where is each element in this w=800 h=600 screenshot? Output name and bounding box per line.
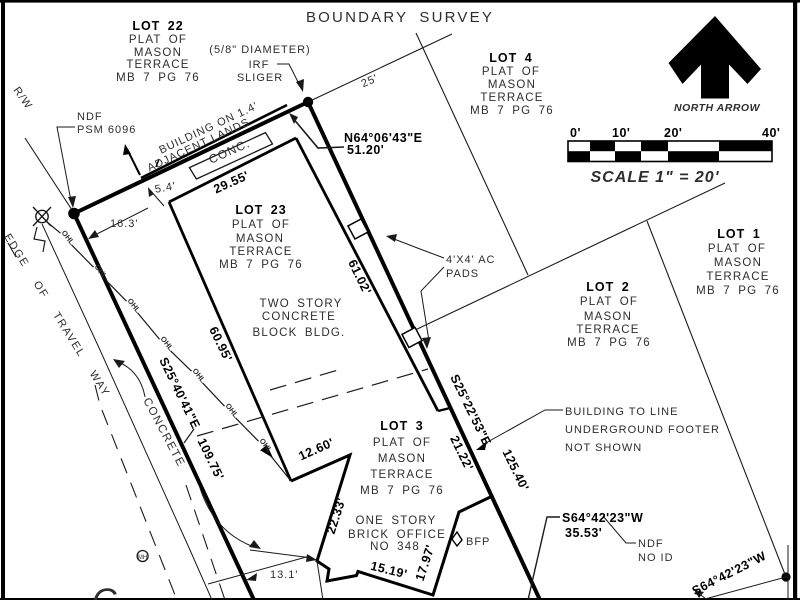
svg-text:BOUNDARY SURVEY: BOUNDARY SURVEY <box>306 9 494 26</box>
svg-text:PLAT OF: PLAT OF <box>232 219 290 231</box>
svg-text:40': 40' <box>762 126 780 140</box>
svg-text:PSM 6096: PSM 6096 <box>77 124 136 136</box>
svg-text:PLAT OF: PLAT OF <box>708 243 766 255</box>
svg-text:MB 7 PG 76: MB 7 PG 76 <box>116 72 200 84</box>
svg-text:PLAT OF: PLAT OF <box>482 66 540 78</box>
svg-text:13.1': 13.1' <box>270 569 299 581</box>
svg-text:IRF: IRF <box>249 59 270 71</box>
svg-text:NDF: NDF <box>77 111 103 123</box>
svg-text:(5/8" DIAMETER): (5/8" DIAMETER) <box>209 44 310 56</box>
svg-text:TERRACE: TERRACE <box>229 246 292 258</box>
svg-text:51.20': 51.20' <box>347 143 384 157</box>
svg-text:MASON: MASON <box>236 233 284 245</box>
svg-text:TERRACE: TERRACE <box>576 324 639 336</box>
svg-text:ONE STORY: ONE STORY <box>355 515 436 527</box>
svg-text:BFP: BFP <box>466 536 490 548</box>
svg-text:4'X4' AC: 4'X4' AC <box>446 254 496 266</box>
svg-text:TERRACE: TERRACE <box>706 271 769 283</box>
svg-text:MB 7 PG 76: MB 7 PG 76 <box>470 105 554 117</box>
svg-text:TERRACE: TERRACE <box>370 469 433 481</box>
svg-text:20': 20' <box>664 126 682 140</box>
svg-text:0': 0' <box>570 126 581 140</box>
svg-text:35.53': 35.53' <box>565 526 602 540</box>
svg-text:TWO STORY: TWO STORY <box>259 298 342 310</box>
svg-text:NORTH ARROW: NORTH ARROW <box>674 102 761 114</box>
svg-text:UNDERGROUND FOOTER: UNDERGROUND FOOTER <box>565 424 720 436</box>
svg-text:TERRACE: TERRACE <box>480 92 543 104</box>
svg-text:NDF: NDF <box>638 538 664 550</box>
svg-text:TERRACE: TERRACE <box>126 59 189 71</box>
svg-text:MB 7 PG 76: MB 7 PG 76 <box>567 337 651 349</box>
svg-text:PLAT OF: PLAT OF <box>373 437 431 449</box>
svg-text:S64°42'23"W: S64°42'23"W <box>562 511 643 525</box>
svg-text:MB 7 PG 76: MB 7 PG 76 <box>696 285 780 297</box>
svg-text:SLIGER: SLIGER <box>237 72 283 84</box>
svg-text:MASON: MASON <box>134 47 182 59</box>
svg-text:LOT 23: LOT 23 <box>235 203 286 217</box>
svg-text:NO ID: NO ID <box>638 552 674 564</box>
svg-text:LOT 22: LOT 22 <box>132 19 183 33</box>
svg-text:MB 7 PG 76: MB 7 PG 76 <box>219 259 303 271</box>
svg-text:CONCRETE: CONCRETE <box>262 311 336 323</box>
svg-text:NO 348: NO 348 <box>370 541 420 553</box>
svg-text:BRICK OFFICE: BRICK OFFICE <box>348 529 446 541</box>
svg-text:LOT 3: LOT 3 <box>380 419 423 433</box>
svg-text:PLAT OF: PLAT OF <box>129 34 187 46</box>
svg-text:MH: MH <box>138 555 147 561</box>
svg-text:LOT 1: LOT 1 <box>717 227 760 241</box>
svg-text:PLAT OF: PLAT OF <box>580 296 638 308</box>
svg-text:MASON: MASON <box>378 453 426 465</box>
svg-text:LOT 2: LOT 2 <box>586 280 629 294</box>
svg-text:NOT SHOWN: NOT SHOWN <box>565 442 642 454</box>
svg-text:10': 10' <box>612 126 630 140</box>
svg-text:C: C <box>92 582 117 600</box>
svg-text:MB 7 PG 76: MB 7 PG 76 <box>360 485 444 497</box>
svg-text:MASON: MASON <box>714 257 762 269</box>
svg-text:16.3': 16.3' <box>110 218 139 230</box>
svg-text:SCALE 1" = 20': SCALE 1" = 20' <box>591 169 720 186</box>
svg-text:MASON: MASON <box>584 311 632 323</box>
svg-text:LOT 4: LOT 4 <box>489 51 532 65</box>
svg-text:BUILDING TO LINE: BUILDING TO LINE <box>565 406 678 418</box>
svg-text:MASON: MASON <box>488 79 536 91</box>
svg-text:PADS: PADS <box>446 268 479 280</box>
svg-text:BLOCK BLDG.: BLOCK BLDG. <box>253 327 346 339</box>
